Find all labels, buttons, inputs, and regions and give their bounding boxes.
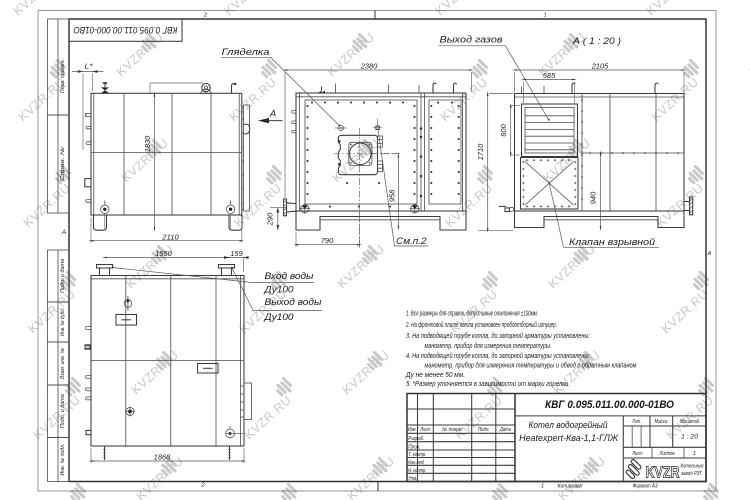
svg-text:1868: 1868 [154, 455, 171, 462]
svg-text:5. *Размер уточняется в зависи: 5. *Размер уточняется в зависимости от м… [406, 379, 570, 388]
svg-text:А: А [269, 109, 276, 120]
svg-text:А: А [707, 251, 712, 257]
svg-text:600: 600 [501, 124, 508, 137]
svg-text:А: А [61, 229, 66, 236]
svg-text:Копировал: Копировал [558, 484, 584, 490]
svg-text:Подп. и дата: Подп. и дата [60, 259, 66, 293]
svg-text:Перв. примен.: Перв. примен. [60, 59, 66, 93]
svg-text:Масштаб: Масштаб [680, 419, 700, 425]
svg-text:КВГ 0.095.011.00.000-01ВО: КВГ 0.095.011.00.000-01ВО [545, 399, 675, 411]
svg-text:2. На фронтовой плите котла ус: 2. На фронтовой плите котла установлен п… [405, 320, 557, 329]
svg-text:Листов: Листов [659, 451, 675, 457]
svg-text:1: 1 [541, 484, 544, 490]
svg-text:1: 1 [543, 13, 546, 19]
svg-text:Котельный: Котельный [681, 462, 704, 469]
svg-text:790: 790 [321, 238, 334, 245]
svg-text:Инв. № дубл.: Инв. № дубл. [60, 308, 66, 336]
svg-text:1550: 1550 [155, 251, 172, 258]
svg-text:завод РЗТ: завод РЗТ [680, 471, 703, 477]
svg-text:Вход воды: Вход воды [265, 271, 314, 281]
svg-text:Ду100: Ду100 [263, 285, 294, 295]
svg-text:585: 585 [543, 73, 556, 80]
svg-text:3. На подводящей трубе котла,: 3. На подводящей трубе котла, до запорно… [406, 331, 590, 340]
svg-text:1830: 1830 [145, 136, 152, 153]
svg-text:Нач.отд: Нач.отд [408, 460, 424, 466]
svg-text:2: 2 [203, 13, 207, 19]
svg-text:См.п.2: См.п.2 [396, 236, 427, 247]
svg-text:958: 958 [389, 190, 396, 203]
svg-text:манометр, прибор для измерения: манометр, прибор для измерения температу… [425, 341, 552, 350]
svg-text:Лит.: Лит. [631, 419, 641, 425]
svg-text:Дата: Дата [499, 427, 511, 433]
svg-text:Формат А3: Формат А3 [633, 484, 659, 490]
svg-text:Гляделка: Гляделка [222, 47, 270, 58]
svg-text:Пров.: Пров. [408, 445, 420, 451]
svg-text:KVZR: KVZR [646, 465, 680, 482]
svg-text:Котел водогрейный: Котел водогрейный [529, 420, 608, 430]
svg-text:1710: 1710 [478, 144, 485, 161]
svg-text:2: 2 [200, 483, 204, 489]
svg-text:Подп. и дата: Подп. и дата [60, 394, 66, 428]
svg-text:Лист: Лист [632, 451, 643, 457]
svg-text:Инв. № подл.: Инв. № подл. [60, 444, 66, 476]
svg-text:1: 1 [693, 451, 696, 457]
svg-text:Выход воды: Выход воды [265, 297, 322, 307]
svg-text:1. Все размеры для справок, до: 1. Все размеры для справок, допустимые о… [406, 308, 538, 317]
svg-text:2110: 2110 [161, 234, 179, 241]
svg-text:159: 159 [230, 251, 243, 258]
svg-text:Ду100: Ду100 [263, 312, 294, 322]
svg-text:Разраб.: Разраб. [408, 436, 424, 442]
svg-text:Heatexpert-Ква-1,1-ГЛЖ: Heatexpert-Ква-1,1-ГЛЖ [519, 433, 618, 443]
svg-text:Клапан взрывной: Клапан взрывной [569, 237, 656, 248]
svg-text:Лист: Лист [420, 427, 431, 433]
svg-text:Справ. №: Справ. № [60, 146, 66, 181]
svg-text:Подп.: Подп. [478, 427, 490, 433]
svg-text:Взам. инв. №: Взам. инв. № [60, 348, 66, 379]
svg-text:Выход газов: Выход газов [440, 34, 503, 45]
svg-text:L*: L* [85, 64, 93, 71]
svg-text:№ докум.: № докум. [442, 427, 463, 433]
svg-text:манометр, прибор для измерения: манометр, прибор для измерения температу… [425, 360, 637, 369]
svg-text:4. На подводящей трубе котла,: 4. На подводящей трубе котла, до запорно… [406, 351, 590, 360]
svg-text:290: 290 [267, 213, 274, 227]
svg-text:Изм.: Изм. [408, 427, 417, 433]
svg-text:Т. контр.: Т. контр. [408, 452, 426, 458]
svg-text:Н. контр.: Н. контр. [408, 468, 426, 474]
svg-text:940: 940 [591, 192, 598, 205]
svg-text:1 : 20: 1 : 20 [681, 434, 698, 441]
svg-text:Масса: Масса [655, 419, 668, 425]
svg-text:КВГ 0.095.011.00.000-01ВО: КВГ 0.095.011.00.000-01ВО [74, 25, 178, 35]
svg-text:Утв.: Утв. [408, 476, 418, 482]
svg-text:Ду не менее 50 мм.: Ду не менее 50 мм. [405, 370, 465, 379]
svg-text:2105: 2105 [591, 63, 609, 70]
svg-text:2380: 2380 [360, 63, 378, 70]
svg-text:А ( 1 : 20 ): А ( 1 : 20 ) [572, 36, 621, 47]
